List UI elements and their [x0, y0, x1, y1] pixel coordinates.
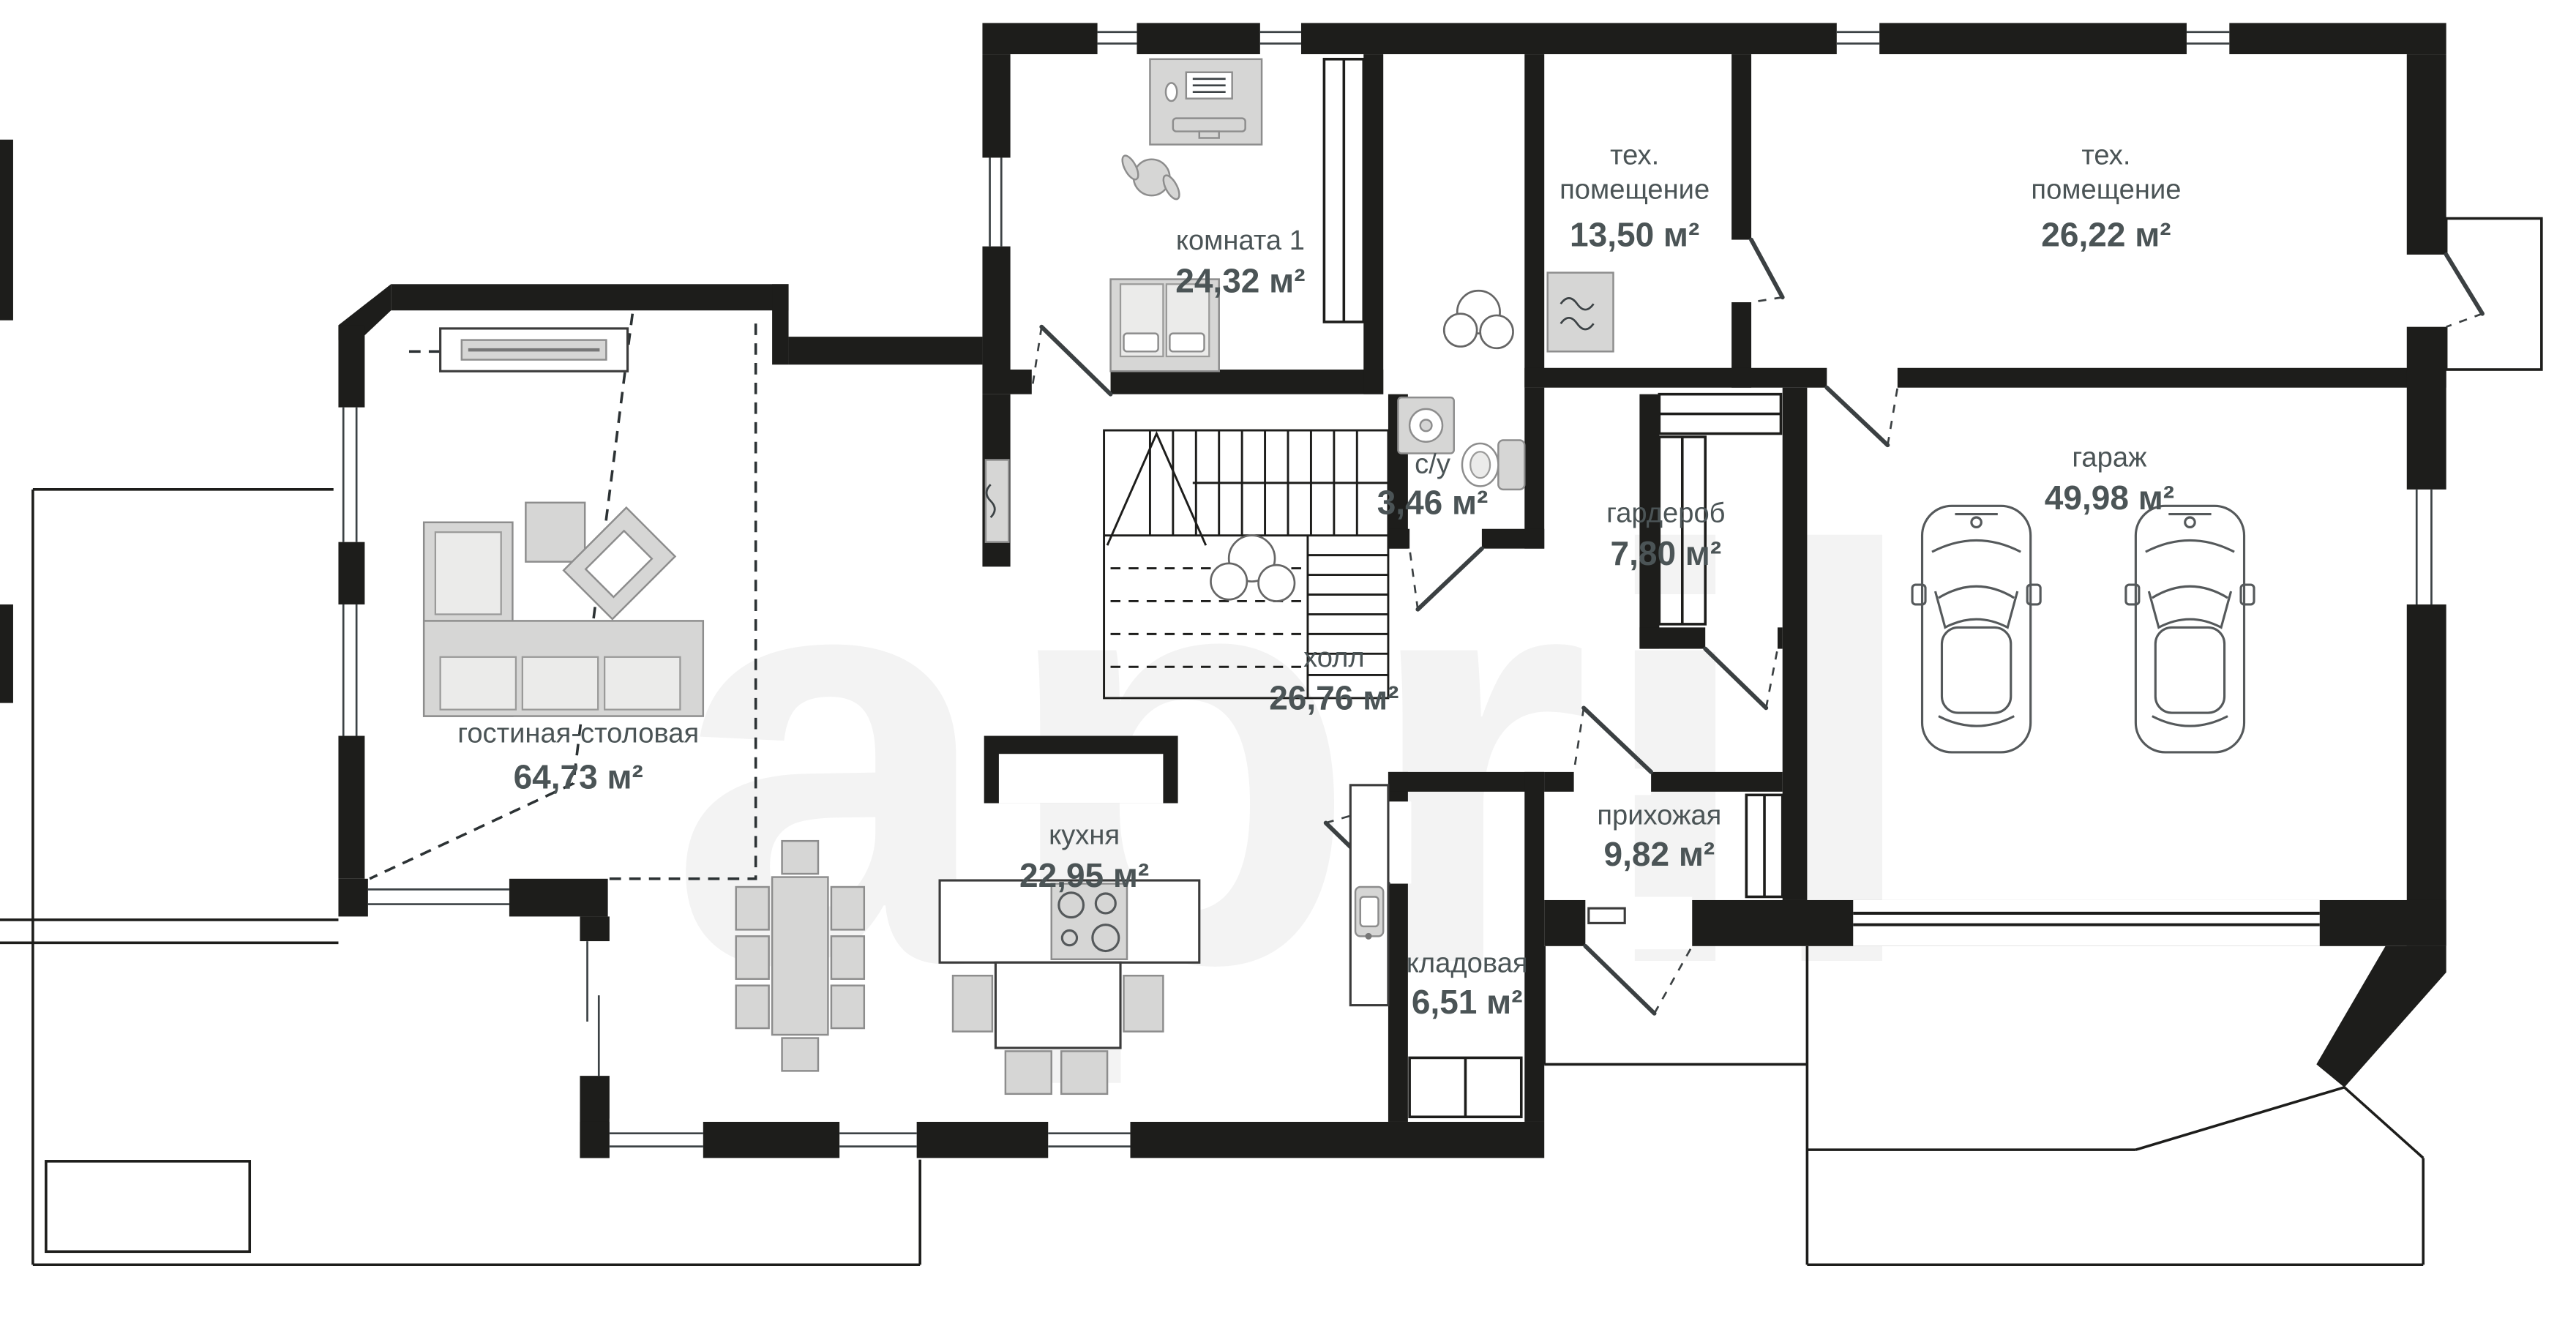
- room-label-wardrobe: гардероб 7,80 м²: [1606, 498, 1725, 572]
- boiler-icon: [1548, 273, 1614, 352]
- room-name: кухня: [1049, 820, 1120, 851]
- room-name: кладовая: [1407, 948, 1528, 979]
- ottoman-icon: [525, 503, 585, 562]
- site-wall-stub: [0, 604, 13, 703]
- floor-plan-svg: april: [0, 0, 2576, 1337]
- room-label-komnata1: комната 1 24,32 м²: [1175, 225, 1305, 299]
- fireplace-icon: [441, 329, 628, 371]
- kitchen-counter-icon: [984, 736, 1178, 804]
- garage-door: [1853, 900, 2320, 946]
- window-icon: [577, 941, 611, 1076]
- window-icon: [368, 875, 509, 920]
- room-name: гардероб: [1606, 498, 1725, 529]
- room-area: 9,82 м²: [1604, 835, 1715, 873]
- room-area: 64,73 м²: [514, 757, 643, 795]
- room-area: 22,95 м²: [1019, 856, 1149, 894]
- room-name: с/у: [1415, 448, 1450, 479]
- threshold: [1589, 908, 1625, 923]
- sink-icon: [1350, 785, 1388, 1005]
- radiator-icon: [986, 460, 1008, 542]
- room-label-entry: прихожая 9,82 м²: [1597, 800, 1721, 873]
- room-label-pantry: кладовая 6,51 м²: [1407, 948, 1528, 1021]
- site-wall-stub: [0, 140, 13, 321]
- room-name: тех.: [1610, 139, 1659, 171]
- room-name: холл: [1303, 642, 1365, 673]
- room-area: 6,51 м²: [1412, 983, 1523, 1021]
- room-name: гостиная-столовая: [457, 718, 699, 749]
- room-name: помещение: [2031, 174, 2181, 206]
- room-area: 7,80 м²: [1610, 534, 1721, 572]
- room-area: 26,76 м²: [1269, 679, 1399, 717]
- washing-machine-icon: [1398, 397, 1453, 453]
- window-icon: [2403, 490, 2449, 604]
- cooktop-icon: [1052, 884, 1127, 959]
- window-icon: [610, 1118, 1131, 1161]
- window-icon: [979, 157, 1012, 246]
- room-area: 3,46 м²: [1377, 484, 1489, 522]
- floor-plan: april: [0, 0, 2576, 1337]
- room-name: комната 1: [1176, 225, 1305, 256]
- room-name: помещение: [1560, 174, 1710, 206]
- room-name: тех.: [2081, 139, 2130, 171]
- room-area: 49,98 м²: [2045, 479, 2174, 517]
- room-area: 26,22 м²: [2041, 216, 2171, 254]
- room-name: прихожая: [1597, 800, 1721, 831]
- room-area: 24,32 м²: [1175, 262, 1305, 300]
- room-name: гараж: [2072, 441, 2147, 473]
- room-area: 13,50 м²: [1570, 216, 1699, 254]
- desk-icon: [1150, 59, 1262, 145]
